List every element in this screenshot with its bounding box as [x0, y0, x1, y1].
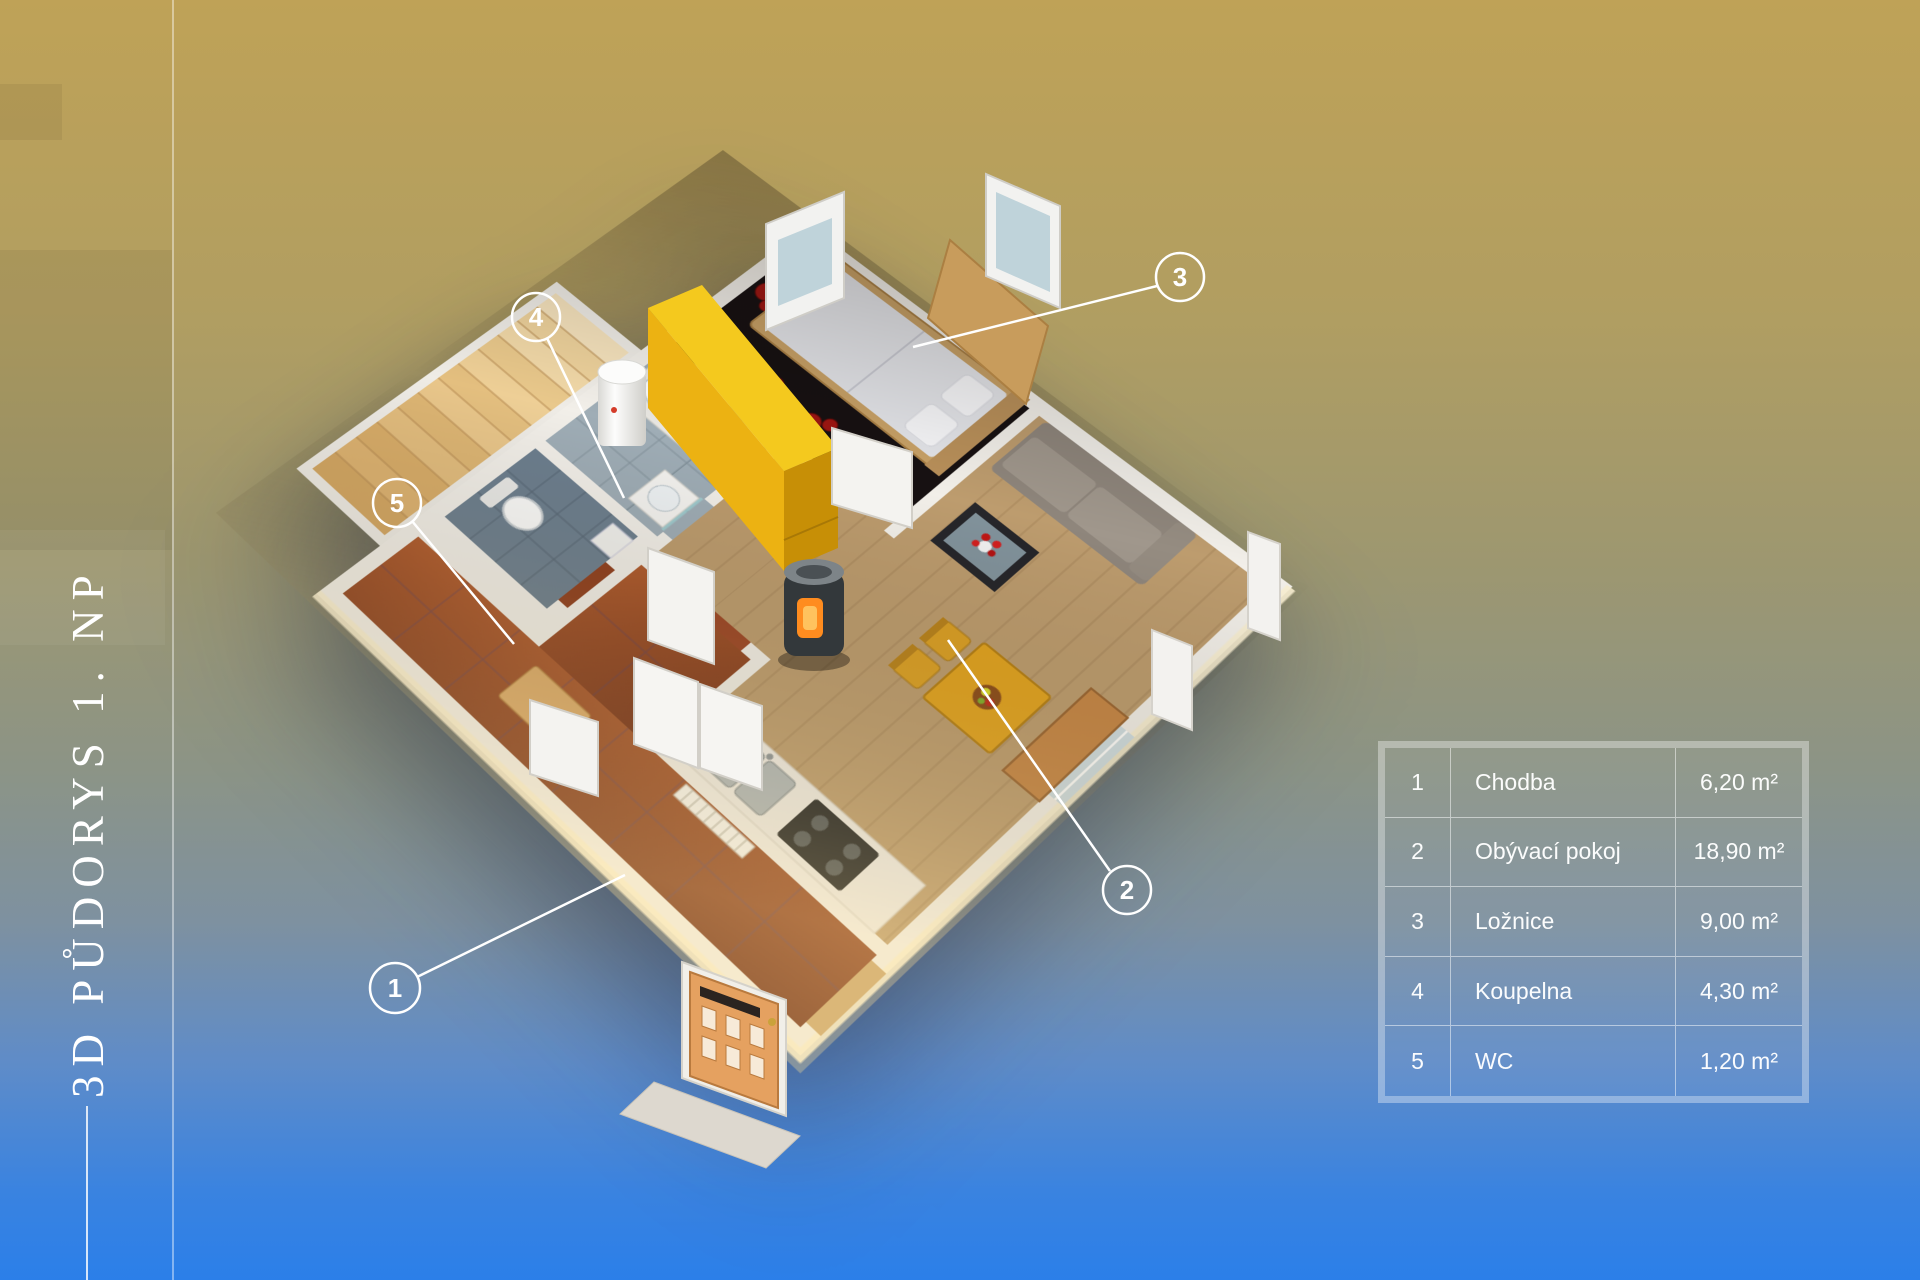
callout-5-wc: 5: [373, 479, 421, 527]
svg-text:1: 1: [388, 973, 402, 1003]
room-name: Ložnice: [1451, 887, 1676, 956]
living-door-leaf-left: [634, 658, 698, 768]
room-name: Chodba: [1451, 748, 1676, 817]
room-number: 5: [1385, 1026, 1451, 1096]
wc-door-leaf: [530, 700, 598, 796]
front-door: [620, 962, 800, 1168]
room-area: 6,20 m²: [1676, 769, 1802, 796]
callout-3-loznice: 3: [1156, 253, 1204, 301]
table-row: 5 WC 1,20 m²: [1385, 1026, 1802, 1096]
wardrobe-yellow: [648, 285, 838, 571]
room-number: 4: [1385, 957, 1451, 1026]
room-number: 2: [1385, 818, 1451, 887]
room-name: Obývací pokoj: [1451, 818, 1676, 887]
table-row: 4 Koupelna 4,30 m²: [1385, 957, 1802, 1027]
water-heater: [598, 360, 646, 446]
balcony-door-nw: [766, 192, 844, 330]
bedroom-door-leaf: [832, 428, 912, 528]
se-wall-panel: [1152, 630, 1192, 730]
room-area: 18,90 m²: [1676, 838, 1802, 865]
svg-text:4: 4: [529, 302, 544, 332]
table-row: 1 Chodba 6,20 m²: [1385, 748, 1802, 818]
room-name: WC: [1451, 1026, 1676, 1096]
living-door-leaf-right: [700, 684, 762, 790]
svg-text:3: 3: [1173, 262, 1187, 292]
table-row: 3 Ložnice 9,00 m²: [1385, 887, 1802, 957]
room-name: Koupelna: [1451, 957, 1676, 1026]
se-wall-panel: [1248, 532, 1280, 640]
bathroom-door-leaf: [648, 548, 714, 664]
room-number: 3: [1385, 887, 1451, 956]
table-row: 2 Obývací pokoj 18,90 m²: [1385, 818, 1802, 888]
room-number: 1: [1385, 748, 1451, 817]
svg-text:5: 5: [390, 488, 404, 518]
door-knob: [768, 1018, 776, 1026]
room-area: 1,20 m²: [1676, 1048, 1802, 1075]
room-legend-table: 1 Chodba 6,20 m² 2 Obývací pokoj 18,90 m…: [1378, 741, 1809, 1103]
callout-2-obyvaci-pokoj: 2: [1103, 866, 1151, 914]
room-area: 9,00 m²: [1676, 908, 1802, 935]
callout-1-chodba: 1: [370, 963, 420, 1013]
room-area: 4,30 m²: [1676, 978, 1802, 1005]
svg-text:2: 2: [1120, 875, 1134, 905]
wood-stove: [778, 559, 850, 671]
callout-4-koupelna: 4: [512, 293, 560, 341]
